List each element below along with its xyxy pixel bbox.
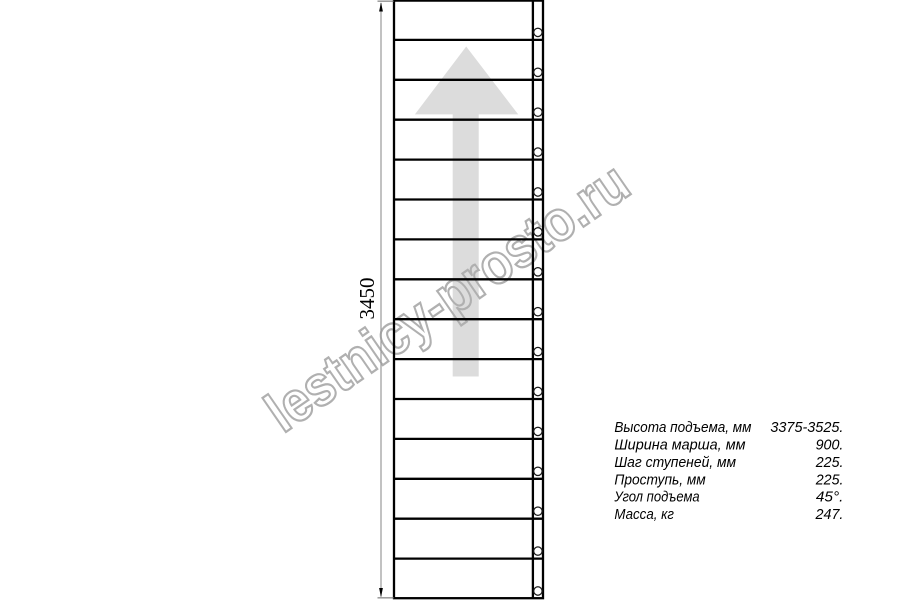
svg-text:247.: 247. xyxy=(815,506,844,523)
svg-text:225.: 225. xyxy=(815,454,844,471)
svg-text:45°.: 45°. xyxy=(816,489,844,506)
svg-text:900.: 900. xyxy=(816,436,844,453)
svg-text:3375-3525.: 3375-3525. xyxy=(770,419,843,436)
svg-text:225.: 225. xyxy=(815,471,844,488)
svg-text:Высота подъема, мм: Высота подъема, мм xyxy=(614,419,751,436)
svg-text:Шаг ступеней, мм: Шаг ступеней, мм xyxy=(614,454,736,471)
svg-text:Масса, кг: Масса, кг xyxy=(614,506,674,523)
svg-text:Проступь, мм: Проступь, мм xyxy=(614,471,705,488)
svg-text:Ширина марша, мм: Ширина марша, мм xyxy=(614,436,745,453)
svg-text:3450: 3450 xyxy=(355,278,379,320)
svg-text:Угол подъема: Угол подъема xyxy=(614,489,700,506)
